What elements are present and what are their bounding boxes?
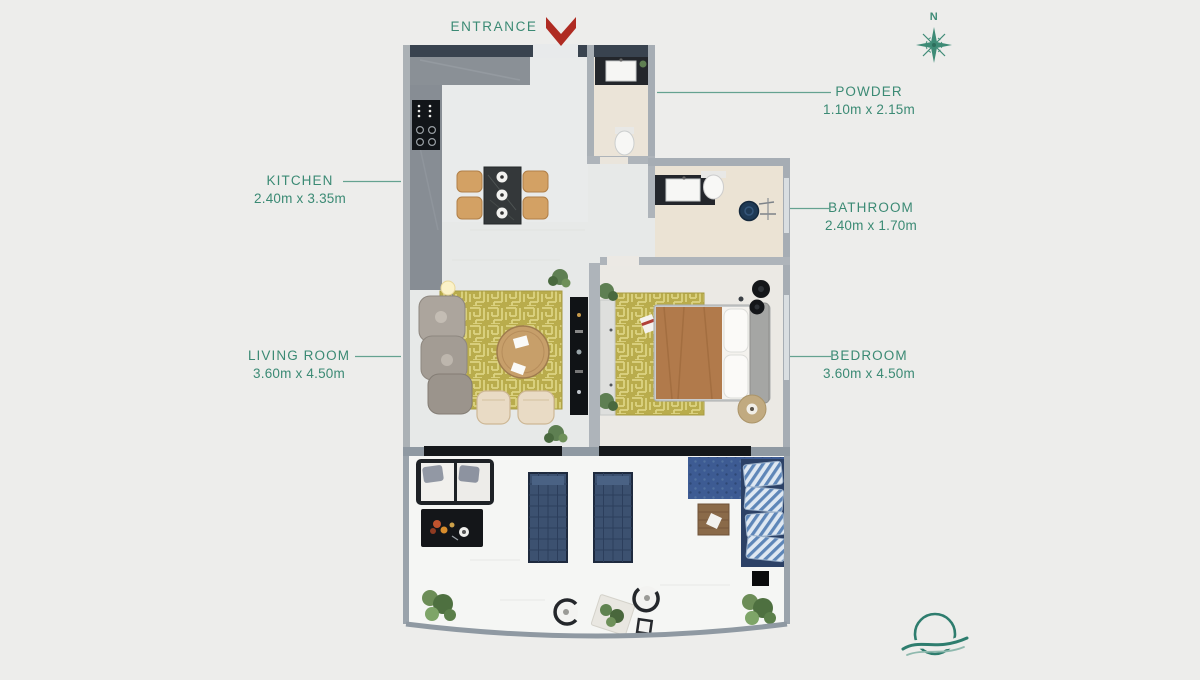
bathroom-sink xyxy=(666,179,700,201)
bathroom-dimensions: 2.40m x 1.70m xyxy=(801,217,941,235)
headboard xyxy=(750,303,769,403)
compass-icon xyxy=(916,27,952,63)
living-room-name: LIVING ROOM xyxy=(229,347,369,365)
sliding-glass-door xyxy=(599,446,751,456)
entrance-door-gap xyxy=(533,44,578,58)
floorplan-drawing xyxy=(0,0,1200,680)
floorplan-canvas: ENTRANCE KITCHEN 2.40m x 3.35m LIVING RO… xyxy=(0,0,1200,680)
bed xyxy=(654,303,770,403)
powder-right-wall xyxy=(648,45,655,166)
coffee-table xyxy=(497,326,549,378)
label-living-room: LIVING ROOM 3.60m x 4.50m xyxy=(229,347,369,383)
jute-rug xyxy=(738,395,766,423)
balcony-round-chair xyxy=(554,600,578,624)
label-bathroom: BATHROOM 2.40m x 1.70m xyxy=(801,199,941,235)
plates xyxy=(497,172,508,219)
living-bedroom-divider xyxy=(589,263,600,456)
powder-sink xyxy=(606,61,636,81)
balcony-loveseat xyxy=(416,459,494,505)
media-console xyxy=(570,297,588,415)
sliding-glass-door xyxy=(424,446,562,456)
label-kitchen: KITCHEN 2.40m x 3.35m xyxy=(230,172,370,208)
left-wall xyxy=(403,45,410,456)
bathroom-name: BATHROOM xyxy=(801,199,941,217)
label-powder: POWDER 1.10m x 2.15m xyxy=(799,83,939,119)
pillow xyxy=(724,355,748,398)
balcony-side-table xyxy=(752,571,769,586)
balcony-round-chair xyxy=(634,586,659,611)
compass-north-label: N xyxy=(924,11,944,23)
balcony-corner-sofa xyxy=(741,459,787,567)
bedroom-name: BEDROOM xyxy=(799,347,939,365)
powder-left-wall xyxy=(587,45,594,163)
label-bedroom: BEDROOM 3.60m x 4.50m xyxy=(799,347,939,383)
bedroom-dimensions: 3.60m x 4.50m xyxy=(799,365,939,383)
bathroom-top-wall xyxy=(648,158,790,166)
top-wall xyxy=(403,45,655,57)
kitchen-dimensions: 2.40m x 3.35m xyxy=(230,190,370,208)
balcony-dining-table xyxy=(421,509,483,547)
kitchen-name: KITCHEN xyxy=(230,172,370,190)
balcony-wood-table xyxy=(698,504,729,535)
living-room-dimensions: 3.60m x 4.50m xyxy=(229,365,369,383)
powder-toilet xyxy=(615,127,634,155)
pillow xyxy=(724,309,748,352)
wave-circle-logo xyxy=(903,614,967,655)
powder-name: POWDER xyxy=(799,83,939,101)
entrance-label: ENTRANCE xyxy=(424,19,564,34)
powder-dimensions: 1.10m x 2.15m xyxy=(799,101,939,119)
bathroom-left-wall xyxy=(648,166,655,218)
balcony-right-wall xyxy=(784,456,790,624)
balcony-left-wall xyxy=(403,456,409,624)
balcony-small-stool xyxy=(637,619,652,634)
stove xyxy=(412,100,440,150)
